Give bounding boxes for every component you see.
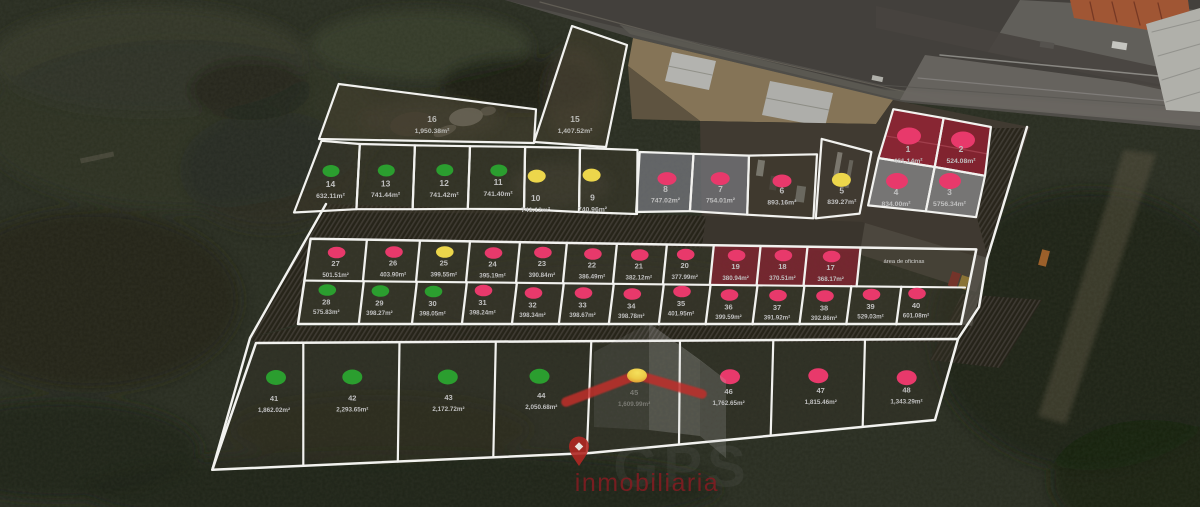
svg-text:36: 36 xyxy=(724,303,732,312)
svg-text:529.03m²: 529.03m² xyxy=(857,314,884,321)
svg-text:44: 44 xyxy=(537,391,546,400)
svg-text:747.02m²: 747.02m² xyxy=(651,198,681,205)
svg-text:43: 43 xyxy=(444,393,452,402)
svg-text:403.90m²: 403.90m² xyxy=(380,272,407,279)
svg-text:3: 3 xyxy=(947,187,952,197)
svg-text:401.95m²: 401.95m² xyxy=(668,311,695,318)
svg-text:398.27m²: 398.27m² xyxy=(366,310,393,317)
svg-text:33: 33 xyxy=(578,301,586,310)
svg-text:14: 14 xyxy=(326,179,336,189)
svg-text:19: 19 xyxy=(731,262,739,271)
svg-text:5: 5 xyxy=(839,185,844,195)
svg-text:27: 27 xyxy=(331,259,339,268)
svg-text:17: 17 xyxy=(826,263,834,272)
svg-text:382.12m²: 382.12m² xyxy=(626,275,653,282)
svg-text:5756.34m²: 5756.34m² xyxy=(933,201,967,208)
svg-text:22: 22 xyxy=(588,261,596,270)
svg-text:893.16m²: 893.16m² xyxy=(767,199,797,206)
svg-text:41: 41 xyxy=(270,394,278,403)
svg-text:601.08m²: 601.08m² xyxy=(903,313,930,320)
svg-text:24: 24 xyxy=(488,260,497,269)
svg-text:48: 48 xyxy=(902,386,910,395)
svg-text:377.99m²: 377.99m² xyxy=(671,274,698,281)
svg-text:380.94m²: 380.94m² xyxy=(722,275,749,282)
svg-text:15: 15 xyxy=(570,114,580,124)
svg-text:741.42m²: 741.42m² xyxy=(430,192,460,199)
svg-text:391.92m²: 391.92m² xyxy=(764,315,791,322)
svg-text:16: 16 xyxy=(427,114,437,124)
svg-text:10: 10 xyxy=(531,193,541,203)
svg-text:398.05m²: 398.05m² xyxy=(419,311,446,318)
svg-text:8: 8 xyxy=(663,184,668,194)
svg-text:741.40m²: 741.40m² xyxy=(484,191,514,198)
svg-text:26: 26 xyxy=(389,259,397,268)
svg-text:834.00m²: 834.00m² xyxy=(881,201,911,208)
svg-text:20: 20 xyxy=(681,261,689,270)
svg-text:inmobiliaria: inmobiliaria xyxy=(575,469,719,497)
svg-text:32: 32 xyxy=(528,301,536,310)
svg-text:4: 4 xyxy=(894,187,899,197)
svg-text:398.34m²: 398.34m² xyxy=(519,312,546,319)
svg-text:9: 9 xyxy=(590,193,595,203)
svg-text:2,050.68m²: 2,050.68m² xyxy=(525,404,557,411)
svg-text:398.24m²: 398.24m² xyxy=(469,310,496,317)
svg-text:399.55m²: 399.55m² xyxy=(431,272,458,279)
svg-text:741.12m²: 741.12m² xyxy=(521,207,551,214)
svg-text:399.59m²: 399.59m² xyxy=(715,314,742,321)
svg-text:11: 11 xyxy=(494,177,503,187)
svg-text:23: 23 xyxy=(538,259,546,268)
svg-text:38: 38 xyxy=(820,304,828,313)
svg-text:392.86m²: 392.86m² xyxy=(811,315,838,322)
svg-text:35: 35 xyxy=(677,299,685,308)
svg-text:7: 7 xyxy=(718,184,723,194)
svg-text:754.01m²: 754.01m² xyxy=(706,198,736,205)
svg-text:29: 29 xyxy=(375,299,383,308)
svg-text:461.14m²: 461.14m² xyxy=(893,158,923,165)
svg-text:39: 39 xyxy=(866,302,874,311)
svg-text:370.51m²: 370.51m² xyxy=(769,275,796,282)
svg-text:398.78m²: 398.78m² xyxy=(618,313,645,320)
svg-text:6: 6 xyxy=(780,186,785,196)
svg-text:1,343.29m²: 1,343.29m² xyxy=(890,399,922,406)
svg-text:40: 40 xyxy=(912,301,920,310)
svg-text:42: 42 xyxy=(348,394,356,403)
svg-text:área de oficinas: área de oficinas xyxy=(884,259,925,265)
svg-text:25: 25 xyxy=(440,259,448,268)
svg-text:34: 34 xyxy=(627,302,636,311)
svg-text:1,407.52m²: 1,407.52m² xyxy=(558,128,594,135)
svg-text:1,815.46m²: 1,815.46m² xyxy=(805,399,837,406)
svg-text:575.83m²: 575.83m² xyxy=(313,309,340,316)
svg-text:398.67m²: 398.67m² xyxy=(569,312,596,319)
svg-text:31: 31 xyxy=(478,298,486,307)
svg-text:740.96m²: 740.96m² xyxy=(578,206,608,213)
svg-text:21: 21 xyxy=(635,262,643,271)
svg-text:839.27m²: 839.27m² xyxy=(827,199,857,206)
svg-text:2: 2 xyxy=(959,144,964,154)
svg-text:2,172.72m²: 2,172.72m² xyxy=(432,406,464,413)
svg-text:1,862.02m²: 1,862.02m² xyxy=(258,407,290,414)
svg-text:1,950.38m²: 1,950.38m² xyxy=(415,128,451,135)
svg-text:395.19m²: 395.19m² xyxy=(479,273,506,280)
svg-text:2,293.65m²: 2,293.65m² xyxy=(336,407,368,414)
svg-text:386.49m²: 386.49m² xyxy=(579,274,606,281)
svg-text:12: 12 xyxy=(439,178,449,188)
svg-text:368.17m²: 368.17m² xyxy=(817,276,844,283)
svg-text:28: 28 xyxy=(322,298,330,307)
svg-text:13: 13 xyxy=(381,178,391,188)
svg-text:30: 30 xyxy=(428,299,436,308)
svg-text:47: 47 xyxy=(817,386,825,395)
svg-text:524.08m²: 524.08m² xyxy=(946,158,976,165)
svg-text:18: 18 xyxy=(778,262,786,271)
svg-text:501.51m²: 501.51m² xyxy=(322,272,349,279)
svg-text:37: 37 xyxy=(773,303,781,312)
svg-text:390.84m²: 390.84m² xyxy=(529,272,556,279)
svg-text:632.11m²: 632.11m² xyxy=(316,193,345,200)
svg-text:1: 1 xyxy=(906,144,911,154)
svg-text:741.44m²: 741.44m² xyxy=(371,192,401,199)
